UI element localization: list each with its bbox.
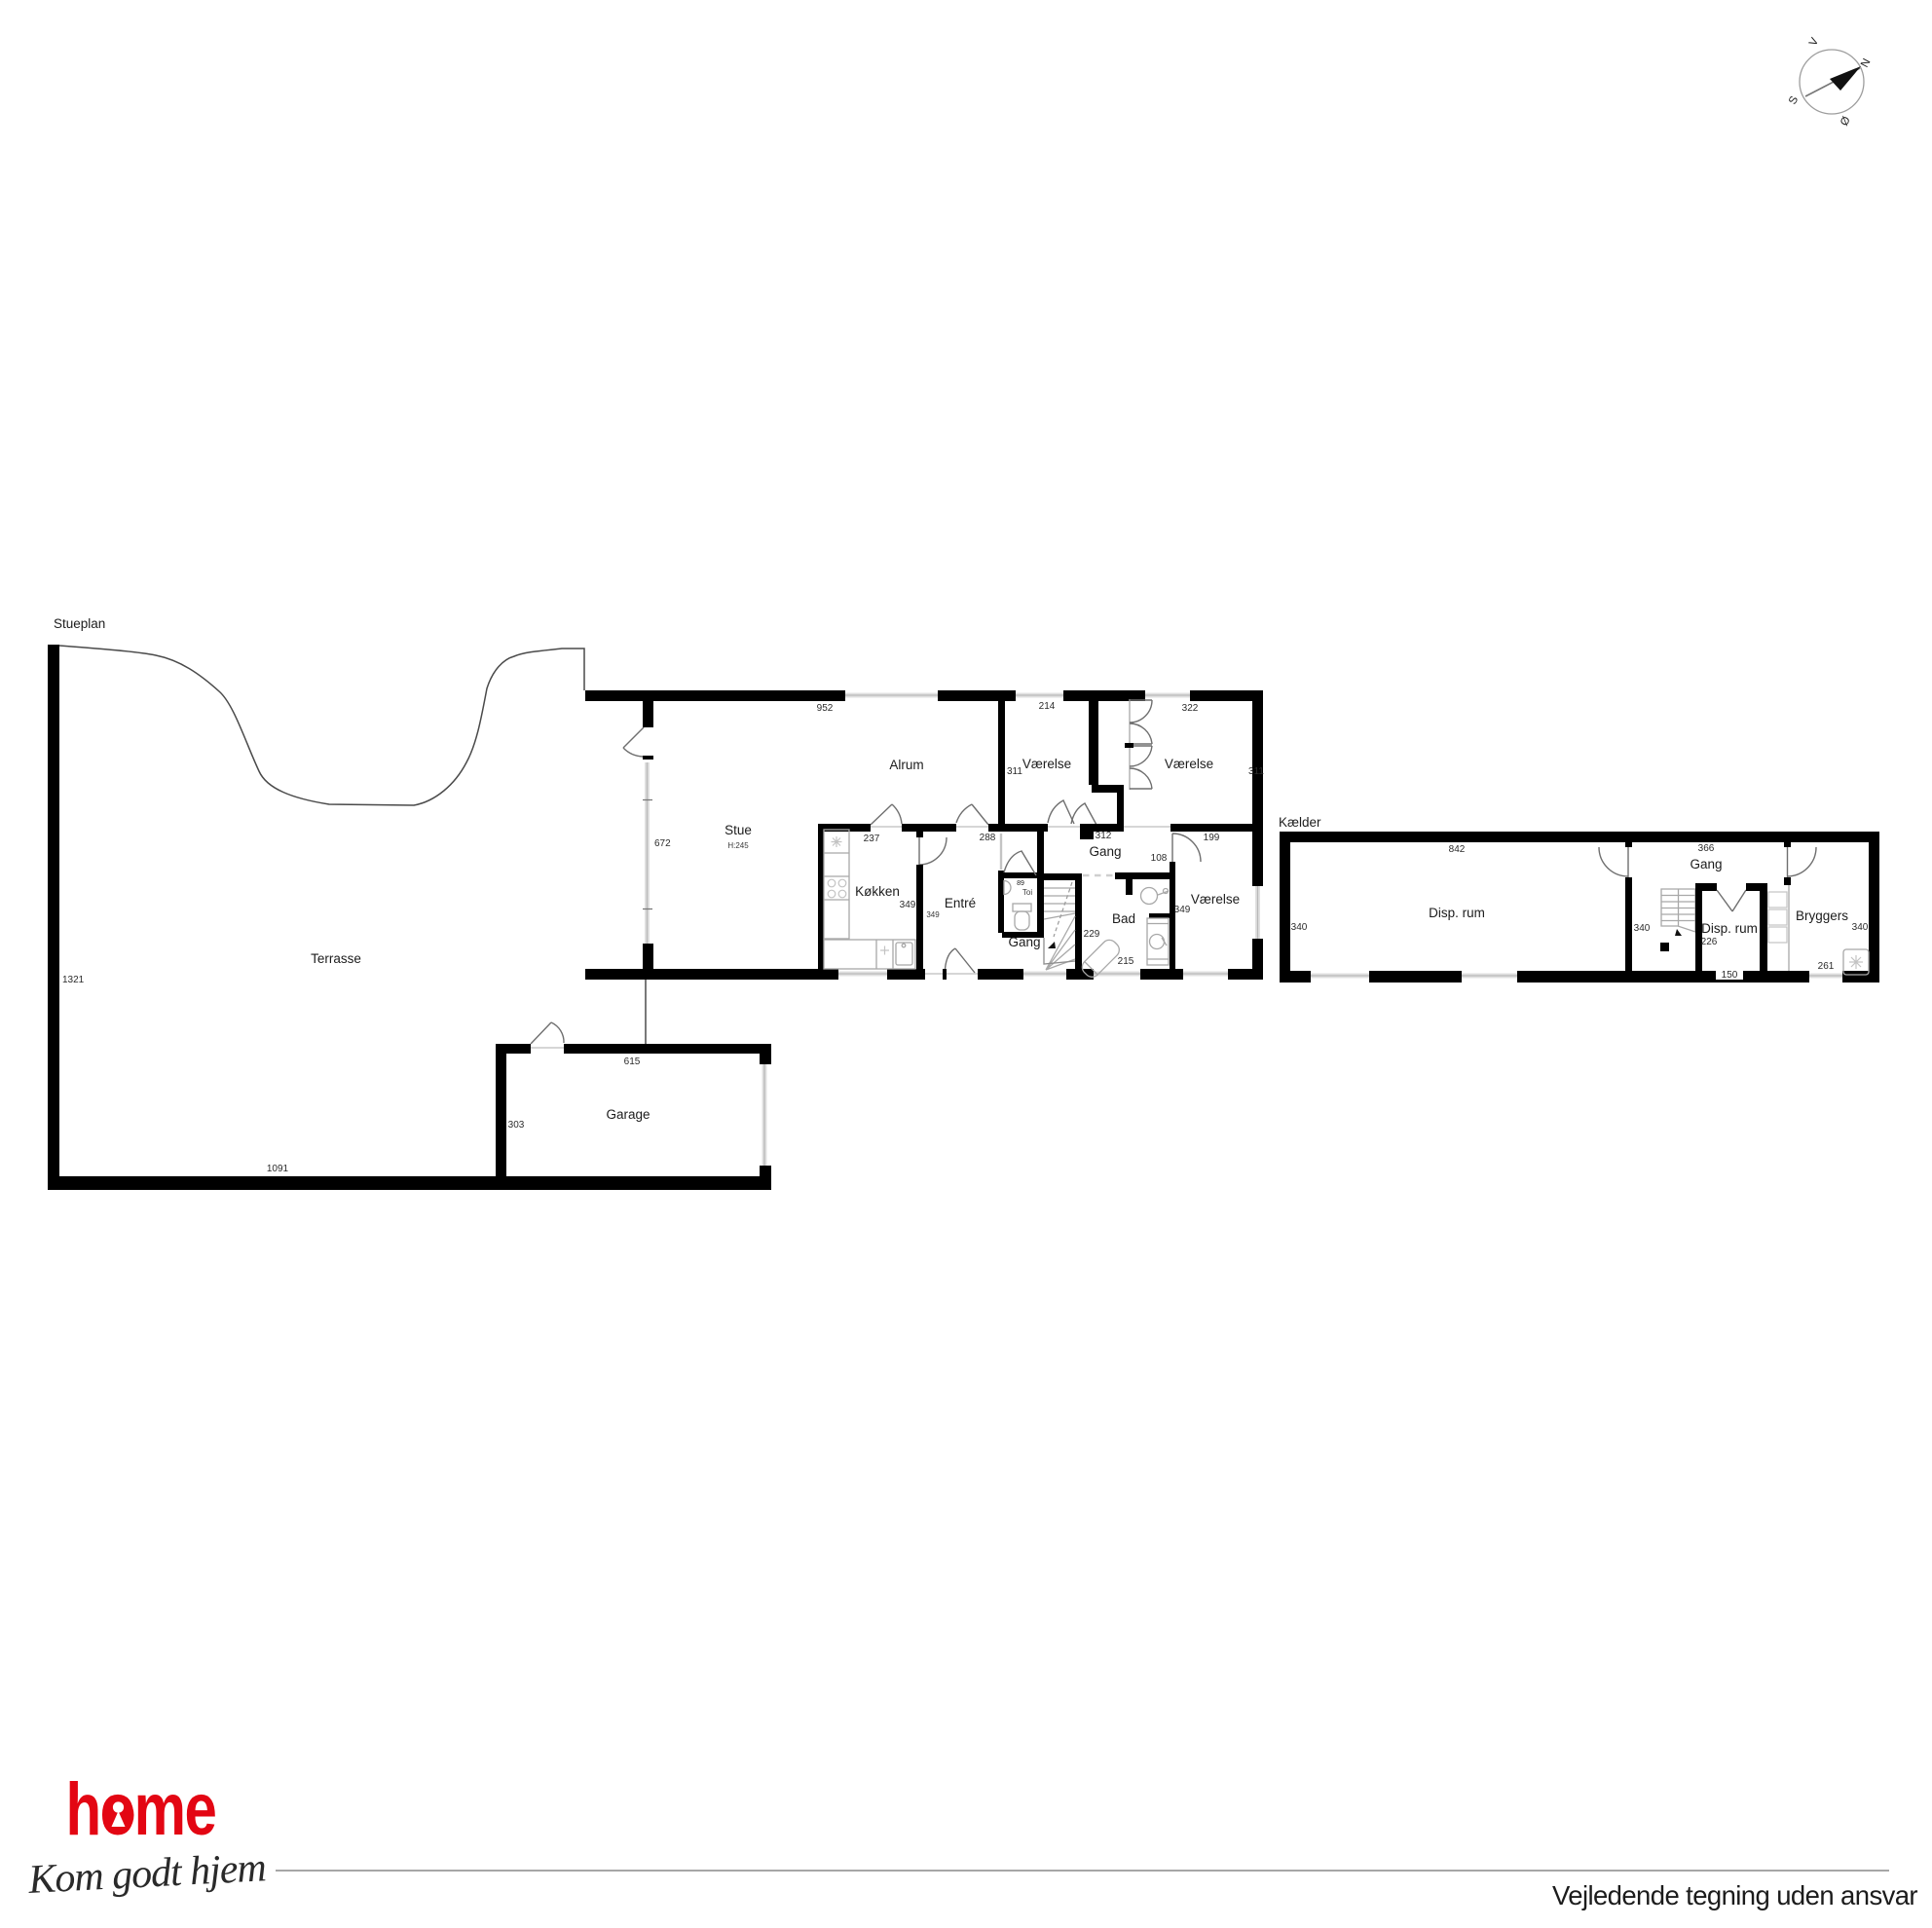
svg-text:215: 215 bbox=[1118, 956, 1134, 967]
svg-text:Værelse: Værelse bbox=[1191, 892, 1240, 907]
svg-text:home: home bbox=[66, 1767, 216, 1850]
svg-text:H:245: H:245 bbox=[727, 841, 749, 850]
svg-text:349: 349 bbox=[900, 900, 916, 910]
svg-text:150: 150 bbox=[1722, 970, 1738, 981]
svg-text:237: 237 bbox=[864, 834, 880, 844]
svg-text:312: 312 bbox=[1096, 831, 1112, 841]
svg-text:226: 226 bbox=[1701, 937, 1718, 947]
svg-text:Værelse: Værelse bbox=[1165, 757, 1213, 771]
svg-text:288: 288 bbox=[980, 833, 996, 843]
svg-text:Entré: Entré bbox=[945, 896, 976, 910]
svg-text:615: 615 bbox=[624, 1057, 641, 1067]
svg-text:311: 311 bbox=[1007, 766, 1022, 777]
svg-text:Toi: Toi bbox=[1022, 888, 1032, 897]
svg-text:Køkken: Køkken bbox=[855, 884, 900, 899]
svg-text:349: 349 bbox=[1174, 905, 1191, 915]
svg-text:340: 340 bbox=[1852, 922, 1869, 933]
svg-text:366: 366 bbox=[1698, 843, 1715, 854]
svg-text:108: 108 bbox=[1151, 853, 1168, 864]
svg-text:672: 672 bbox=[654, 838, 671, 849]
svg-text:Stueplan: Stueplan bbox=[54, 616, 105, 631]
svg-text:340: 340 bbox=[1634, 923, 1651, 934]
svg-text:Kælder: Kælder bbox=[1279, 815, 1321, 830]
svg-text:Gang: Gang bbox=[1690, 857, 1722, 871]
svg-text:Bad: Bad bbox=[1112, 911, 1135, 926]
svg-text:89: 89 bbox=[1017, 880, 1024, 887]
svg-text:1091: 1091 bbox=[267, 1164, 289, 1174]
svg-text:Terrasse: Terrasse bbox=[311, 951, 361, 966]
svg-text:842: 842 bbox=[1449, 844, 1466, 855]
svg-text:Disp. rum: Disp. rum bbox=[1701, 921, 1758, 936]
svg-text:349: 349 bbox=[926, 910, 940, 919]
svg-text:214: 214 bbox=[1039, 701, 1056, 712]
svg-text:Stue: Stue bbox=[724, 823, 752, 837]
svg-text:Alrum: Alrum bbox=[889, 758, 923, 772]
svg-text:340: 340 bbox=[1291, 922, 1308, 933]
svg-text:261: 261 bbox=[1818, 961, 1835, 972]
svg-text:Værelse: Værelse bbox=[1022, 757, 1071, 771]
svg-text:Garage: Garage bbox=[606, 1107, 650, 1122]
svg-text:Vejledende tegning uden ansvar: Vejledende tegning uden ansvar bbox=[1552, 1880, 1917, 1910]
svg-text:311: 311 bbox=[1248, 766, 1264, 777]
svg-text:Gang: Gang bbox=[1089, 844, 1121, 859]
svg-text:322: 322 bbox=[1182, 703, 1199, 714]
svg-text:Gang: Gang bbox=[1008, 935, 1040, 949]
svg-text:Bryggers: Bryggers bbox=[1796, 908, 1848, 923]
svg-text:Disp. rum: Disp. rum bbox=[1429, 906, 1485, 920]
svg-text:229: 229 bbox=[1084, 929, 1100, 940]
svg-text:1321: 1321 bbox=[62, 975, 85, 985]
svg-text:952: 952 bbox=[817, 703, 834, 714]
svg-text:199: 199 bbox=[1204, 833, 1220, 843]
svg-text:303: 303 bbox=[508, 1120, 525, 1131]
